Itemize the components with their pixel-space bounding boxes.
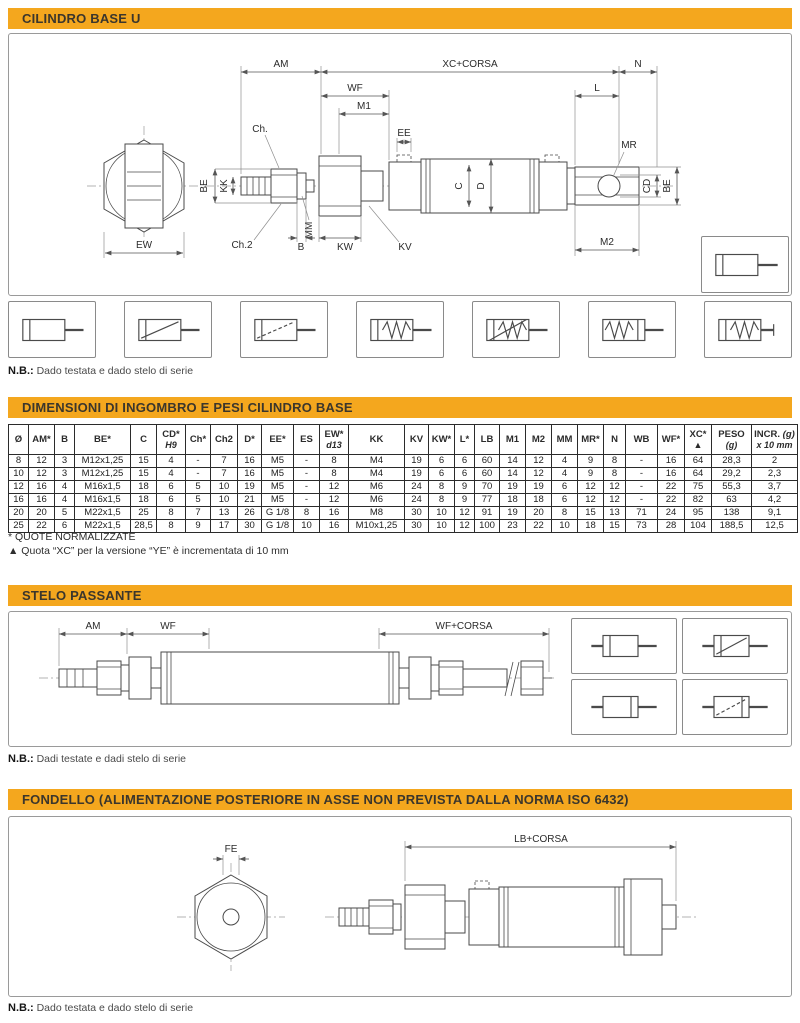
column-header: Ch2 [211,425,238,455]
table-cell: 10 [429,507,455,520]
section-title-dimensions: DIMENSIONI DI INGOMBRO E PESI CILINDRO B… [8,397,792,418]
table-cell: 60 [475,468,500,481]
column-header: C [131,425,157,455]
table-cell: 4 [157,468,186,481]
table-cell: 5 [186,494,211,507]
table-cell: M5 [262,494,294,507]
table-cell: G 1/8 [262,507,294,520]
table-cell: 9 [455,481,475,494]
table-cell: 100 [475,520,500,533]
table-cell: 23 [500,520,526,533]
dim-label-wf-corsa: WF+CORSA [436,621,493,632]
table-cell: - [294,481,320,494]
table-cell: 13 [211,507,238,520]
note-stelo: N.B.: Dadi testate e dadi stelo di serie [8,753,186,765]
note-prefix: N.B.: [8,365,34,377]
column-header: M2 [526,425,552,455]
table-cell: 8 [604,468,626,481]
table-cell: - [626,468,658,481]
table-cell: 12 [320,494,349,507]
table-cell: 19 [526,481,552,494]
dim-label-be-right: BE [662,179,673,193]
dim-label-be-left: BE [199,179,210,193]
table-cell: 28,3 [712,455,752,468]
table-cell: 12 [9,481,29,494]
table-cell: 3,7 [752,481,798,494]
table-cell: 7 [211,468,238,481]
table-cell: 9 [455,494,475,507]
table-header-row: ØAM*BBE*CCD*H9Ch*Ch2D*EE*ESEW*d13KKKVKW*… [9,425,798,455]
table-cell: 4 [55,494,75,507]
table-cell: 16 [658,468,685,481]
table-cell: M5 [262,481,294,494]
dim-label-wf: WF [347,83,363,94]
table-cell: 19 [238,481,262,494]
table-cell: 3 [55,455,75,468]
through-rod-cylinder-rear-piston-icon [571,679,677,735]
dim-label-l: L [594,83,600,94]
table-cell: 25 [131,507,157,520]
table-cell: 4 [55,481,75,494]
table-cell: 15 [131,455,157,468]
section-title-stelo: STELO PASSANTE [8,585,792,606]
table-cell: 8 [429,481,455,494]
table-cell: 10 [9,468,29,481]
note-text: Dado testata e dado stelo di serie [37,365,193,377]
table-cell: 138 [712,507,752,520]
dim-label-kw: KW [337,242,354,253]
section-title-base: CILINDRO BASE U [8,8,792,29]
table-cell: 12 [455,520,475,533]
column-header: PESO(g) [712,425,752,455]
table-cell: 7 [186,507,211,520]
table-cell: 4 [552,455,578,468]
cylinder-single-acting-spring-diag-icon [472,301,560,358]
table-cell: 12 [29,468,55,481]
dim-label-lb-corsa: LB+CORSA [514,834,568,845]
column-header: INCR. (g)x 10 mm [752,425,798,455]
rear-cap-end-view: FE [177,844,285,971]
column-header: KV [405,425,429,455]
table-cell: 16 [9,494,29,507]
table-cell: M12x1,25 [75,468,131,481]
table-cell: M5 [262,455,294,468]
table-cell: 24 [405,481,429,494]
table-cell: 2,3 [752,468,798,481]
footnote-xc: ▲ Quota “XC” per la versione “YE” è incr… [8,545,289,557]
through-rod-cylinder-icon [571,618,677,674]
cylinder-spring-rear-icon [704,301,792,358]
table-cell: 64 [685,455,712,468]
table-cell: 16 [658,455,685,468]
dim-label-c: C [454,182,465,189]
table-cell: 14 [500,468,526,481]
table-cell: 8 [157,520,186,533]
dim-label-ch: Ch. [252,124,268,135]
table-cell: 4 [552,468,578,481]
table-cell: 30 [238,520,262,533]
table-cell: 188,5 [712,520,752,533]
table-cell: 8 [157,507,186,520]
table-cell: 20 [526,507,552,520]
table-cell: 10 [429,520,455,533]
table-cell: 10 [211,494,238,507]
table-cell: 15 [131,468,157,481]
table-cell: 12 [578,494,604,507]
table-cell: - [186,468,211,481]
table-cell: - [186,455,211,468]
cylinder-plain-rod-icon [701,236,789,293]
table-cell: 18 [500,494,526,507]
base-cylinder-drawing: EW [9,34,791,294]
dim-label-am: AM [86,621,101,632]
column-header: MR* [578,425,604,455]
table-cell: 14 [500,455,526,468]
table-cell: M4 [349,468,405,481]
table-cell: 10 [552,520,578,533]
table-cell: 8 [9,455,29,468]
table-cell: 12 [526,455,552,468]
table-cell: 26 [238,507,262,520]
dim-label-fe: FE [225,844,238,855]
table-cell: 95 [685,507,712,520]
table-cell: 12 [604,481,626,494]
table-cell: - [626,494,658,507]
cylinder-double-acting-icon [8,301,96,358]
table-cell: 73 [626,520,658,533]
table-cell: 19 [500,481,526,494]
table-cell: 16 [320,520,349,533]
table-cell: - [626,481,658,494]
table-cell: M8 [349,507,405,520]
table-cell: 12 [604,494,626,507]
column-header: WB [626,425,658,455]
dimension-lines: AM XC+CORSA N WF L M1 Ch. EE MR BE [199,59,681,256]
table-cell: 82 [685,494,712,507]
table-cell: 6 [157,481,186,494]
through-rod-cylinder-drawing: AM WF WF+CORSA [9,612,554,744]
dim-label-wf: WF [160,621,176,632]
table-cell: G 1/8 [262,520,294,533]
dim-label-cd: CD [642,179,653,193]
table-cell: 30 [405,520,429,533]
table-cell: 75 [685,481,712,494]
table-cell: 28 [658,520,685,533]
table-cell: M16x1,5 [75,481,131,494]
section-title-fondello: FONDELLO (ALIMENTAZIONE POSTERIORE IN AS… [8,789,792,810]
column-header: N [604,425,626,455]
table-cell: 4,2 [752,494,798,507]
table-cell: 8 [294,507,320,520]
table-cell: 16 [238,455,262,468]
column-header: L* [455,425,475,455]
variant-row-container [8,301,792,358]
dim-label-ew: EW [136,240,153,251]
table-cell: 6 [552,494,578,507]
dim-label-am: AM [274,59,289,70]
table-cell: M4 [349,455,405,468]
table-cell: 9,1 [752,507,798,520]
table-cell: 17 [211,520,238,533]
dim-label-mr: MR [621,140,637,151]
table-cell: 55,3 [712,481,752,494]
table-cell: 18 [131,481,157,494]
table-cell: 8 [320,455,349,468]
table-cell: 16 [29,481,55,494]
table-cell: 2 [752,455,798,468]
table-cell: 64 [685,468,712,481]
table-cell: 10 [211,481,238,494]
table-cell: 15 [578,507,604,520]
note-fondello: N.B.: Dado testata e dado stelo di serie [8,1002,193,1014]
table-cell: 8 [320,468,349,481]
side-view-cylinder [325,879,699,955]
column-header: XC*▲ [685,425,712,455]
table-cell: 9 [578,468,604,481]
column-header: B [55,425,75,455]
table-cell: 70 [475,481,500,494]
dim-label-ee: EE [397,128,411,139]
table-row: 10123M12x1,25154-716M5-8M41966601412498-… [9,468,798,481]
table-cell: 5 [55,507,75,520]
table-cell: 21 [238,494,262,507]
column-header: AM* [29,425,55,455]
table-cell: 16 [320,507,349,520]
datasheet-page: { "colors": {"accent": "#F4A71E", "bar_t… [0,0,800,1023]
table-cell: 12 [29,455,55,468]
note-prefix: N.B.: [8,1002,34,1014]
cylinder-spring-front-icon [588,301,676,358]
table-cell: 22 [526,520,552,533]
table-cell: 16 [29,494,55,507]
dim-label-ch2: Ch.2 [231,240,253,251]
table-cell: 4 [157,455,186,468]
table-cell: 3 [55,468,75,481]
stelo-variant-grid [571,618,786,733]
table-cell: 12 [578,481,604,494]
column-header: EW*d13 [320,425,349,455]
note-text: Dado testata e dado stelo di serie [37,1002,193,1014]
table-cell: 5 [186,481,211,494]
table-cell: 71 [626,507,658,520]
table-cell: 15 [604,520,626,533]
table-cell: 60 [475,455,500,468]
table-cell: 20 [9,507,29,520]
table-cell: M22x1,5 [75,507,131,520]
column-header: BE* [75,425,131,455]
table-row: 12164M16x1,518651019M5-12M62489701919612… [9,481,798,494]
table-cell: M6 [349,481,405,494]
dim-label-m1: M1 [357,101,371,112]
table-cell: 104 [685,520,712,533]
dim-label-m2: M2 [600,237,614,248]
table-cell: 6 [429,455,455,468]
note-text: Dadi testate e dadi stelo di serie [37,753,186,765]
table-cell: 7 [211,455,238,468]
table-cell: 19 [405,468,429,481]
table-cell: - [626,455,658,468]
note-base: N.B.: Dado testata e dado stelo di serie [8,365,193,377]
dim-label-kv: KV [398,242,412,253]
table-cell: 30 [405,507,429,520]
table-cell: 6 [552,481,578,494]
table-cell: - [294,455,320,468]
column-header: EE* [262,425,294,455]
table-cell: 16 [238,468,262,481]
table-cell: 22 [658,494,685,507]
column-header: Ø [9,425,29,455]
through-rod-cylinder-diag-dashed-icon [682,679,788,735]
table-cell: M10x1,25 [349,520,405,533]
footnote-normalized: * QUOTE NORMALIZZATE [8,531,136,543]
fondello-drawing-panel: FE LB+CORSA [8,816,792,997]
column-header: MM [552,425,578,455]
side-view-cylinder [205,155,673,216]
table-cell: 29,2 [712,468,752,481]
dim-label-b: B [298,242,305,253]
table-cell: 12 [526,468,552,481]
table-cell: 9 [186,520,211,533]
table-cell: 19 [500,507,526,520]
column-header: LB [475,425,500,455]
column-header: KK [349,425,405,455]
table-cell: M5 [262,468,294,481]
table-cell: M12x1,25 [75,455,131,468]
column-header: D* [238,425,262,455]
table-cell: 91 [475,507,500,520]
table-cell: 20 [29,507,55,520]
table-cell: M16x1,5 [75,494,131,507]
table-cell: 8 [604,455,626,468]
cylinder-double-acting-diag-icon [124,301,212,358]
column-header: Ch* [186,425,211,455]
column-header: ES [294,425,320,455]
table-cell: 24 [405,494,429,507]
table-cell: 6 [429,468,455,481]
column-header: M1 [500,425,526,455]
table-cell: - [294,468,320,481]
column-header: KW* [429,425,455,455]
table-cell: - [294,494,320,507]
table-row: 8123M12x1,25154-716M5-8M41966601412498-1… [9,455,798,468]
dim-label-n: N [634,59,641,70]
table-cell: 12 [455,507,475,520]
table-cell: 19 [405,455,429,468]
note-prefix: N.B.: [8,753,34,765]
table-cell: 24 [658,507,685,520]
cylinder-double-acting-diag-dashed-icon [240,301,328,358]
table-cell: 12,5 [752,520,798,533]
table-cell: M6 [349,494,405,507]
table-cell: 9 [578,455,604,468]
table-cell: 13 [604,507,626,520]
dimensions-table: ØAM*BBE*CCD*H9Ch*Ch2D*EE*ESEW*d13KKKVKW*… [8,424,798,533]
table-cell: 12 [320,481,349,494]
column-header: CD*H9 [157,425,186,455]
cylinder-single-acting-spring-icon [356,301,444,358]
table-cell: 77 [475,494,500,507]
stelo-drawing-panel: AM WF WF+CORSA [8,611,792,747]
end-view-hexagon: EW [87,126,201,258]
dim-label-kk: KK [219,179,230,193]
table-cell: 22 [658,481,685,494]
base-drawing-panel: EW [8,33,792,296]
table-cell: 8 [552,507,578,520]
table-cell: 10 [294,520,320,533]
dim-label-d: D [476,182,487,189]
table-cell: 8 [429,494,455,507]
table-cell: 18 [526,494,552,507]
table-cell: 18 [578,520,604,533]
table-cell: 6 [455,468,475,481]
table-cell: 6 [157,494,186,507]
table-cell: 18 [131,494,157,507]
table-row: 20205M22x1,525871326G 1/8816M83010129119… [9,507,798,520]
table-row: 16164M16x1,518651021M5-12M62489771818612… [9,494,798,507]
through-rod-cylinder-diag-icon [682,618,788,674]
table-cell: 6 [455,455,475,468]
column-header: WF* [658,425,685,455]
table-cell: 63 [712,494,752,507]
fondello-cylinder-drawing: FE LB+CORSA [9,817,791,994]
dim-label-xc-corsa: XC+CORSA [442,59,498,70]
variant-extra-container [701,236,789,293]
